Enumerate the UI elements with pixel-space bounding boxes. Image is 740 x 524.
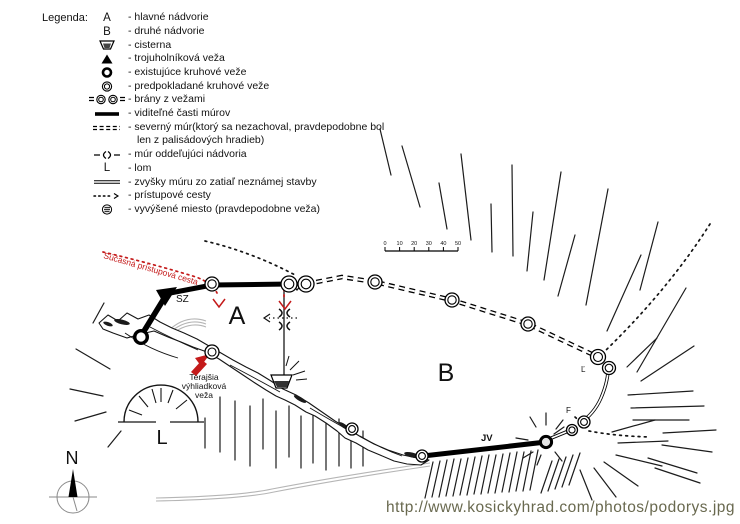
label-jv: JV [481, 433, 493, 444]
castle-plan-page: 0 10 20 30 40 50 A B L N SZ JV Ľ F Súčas… [0, 0, 740, 524]
scale-tick: 30 [426, 241, 432, 247]
compass [49, 469, 97, 513]
visible-wall-icon [88, 108, 126, 120]
access-paths [205, 224, 710, 437]
wall-remains-icon [88, 176, 126, 188]
label-sz: SZ [176, 294, 189, 305]
unknown-building-wall [549, 372, 608, 439]
scale-tick: 0 [383, 241, 386, 247]
label-east-point: Ľ [581, 365, 586, 374]
label-courtyard-b: B [438, 359, 455, 387]
legend-heading: Legenda: [42, 12, 88, 24]
north-wall-icon [88, 122, 126, 134]
label-quarry-l: L [156, 427, 167, 449]
legend-item: B - druhé nádvorie [88, 25, 384, 39]
source-url: http://www.kosickyhrad.com/photos/podory… [386, 499, 735, 517]
legend-item: - viditeľné časti múrov [88, 107, 384, 121]
gate-towers-icon [88, 93, 126, 106]
dividing-wall-icon [88, 149, 126, 161]
letter-b-symbol: B [88, 26, 126, 38]
legend-item: - vyvýšené miesto (pravdepodobne veža) [88, 203, 384, 217]
label-lookout-3: veža [195, 390, 213, 400]
scale-tick: 10 [397, 241, 403, 247]
scale-bar: 0 10 20 30 40 50 [383, 241, 461, 251]
label-f-point: F [566, 406, 571, 415]
cistern [271, 356, 307, 388]
legend-item: - múr oddeľujúci nádvoria [88, 148, 384, 162]
label-courtyard-a: A [229, 302, 246, 330]
legend-item: - cisterna [88, 38, 384, 52]
legend-item: - severný múr(ktorý sa nezachoval, pravd… [88, 121, 384, 148]
assumed-round-tower-icon [88, 80, 126, 93]
legend: A - hlavné nádvorie B - druhé nádvorie -… [88, 11, 384, 216]
scale-tick: 40 [440, 241, 446, 247]
cistern-icon [88, 39, 126, 51]
access-path-icon [88, 190, 126, 202]
scale-tick: 50 [455, 241, 461, 247]
letter-a-symbol: A [88, 12, 126, 24]
legend-item: - prístupové cesty [88, 189, 384, 203]
triangular-tower-icon [88, 53, 126, 65]
legend-item: A - hlavné nádvorie [88, 11, 384, 25]
legend-item: - predpokladané kruhové veže [88, 79, 384, 93]
legend-item: - existujúce kruhové veže [88, 66, 384, 80]
elevated-place-icon [88, 203, 126, 216]
label-current-access-road: Súčasná prístupová cesta [102, 250, 199, 287]
legend-item: - zvyšky múru zo zatiaľ neznámej stavby [88, 175, 384, 189]
legend-item: - trojuholníková veža [88, 52, 384, 66]
scale-tick: 20 [411, 241, 417, 247]
legend-item: - brány z vežami [88, 93, 384, 107]
dividing-wall [264, 287, 297, 377]
north-palisade-wall [306, 277, 598, 357]
legend-item: L - lom [88, 162, 384, 176]
letter-l-symbol: L [88, 162, 126, 174]
existing-round-tower-icon [88, 66, 126, 79]
label-north-n: N [66, 448, 79, 468]
